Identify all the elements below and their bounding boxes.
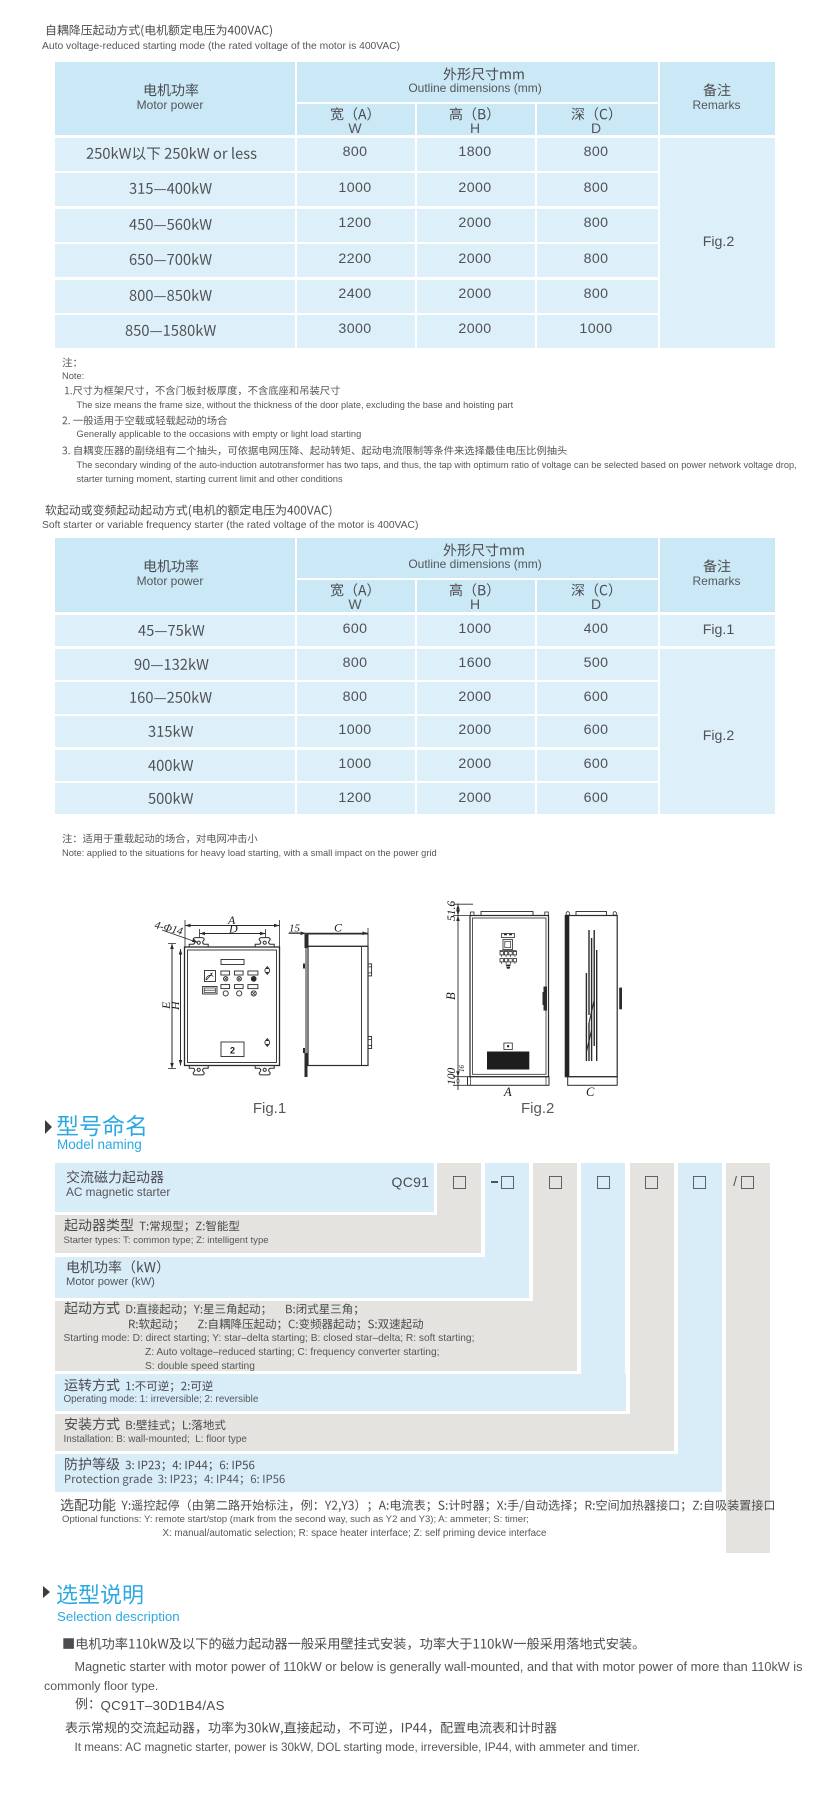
svg-text:C: C bbox=[334, 921, 343, 935]
svg-text:B: B bbox=[444, 992, 458, 1000]
svg-text:C: C bbox=[586, 1085, 595, 1099]
svg-text:A: A bbox=[503, 1085, 512, 1099]
svg-text:2: 2 bbox=[230, 1046, 235, 1056]
svg-text:100: 100 bbox=[446, 1068, 458, 1086]
svg-text:16: 16 bbox=[458, 1065, 466, 1073]
svg-text:D: D bbox=[228, 922, 238, 936]
svg-text:15: 15 bbox=[289, 923, 301, 935]
svg-text:4-Φ14: 4-Φ14 bbox=[153, 919, 184, 938]
svg-text:51.6: 51.6 bbox=[446, 901, 458, 921]
svg-text:H: H bbox=[168, 1000, 182, 1011]
